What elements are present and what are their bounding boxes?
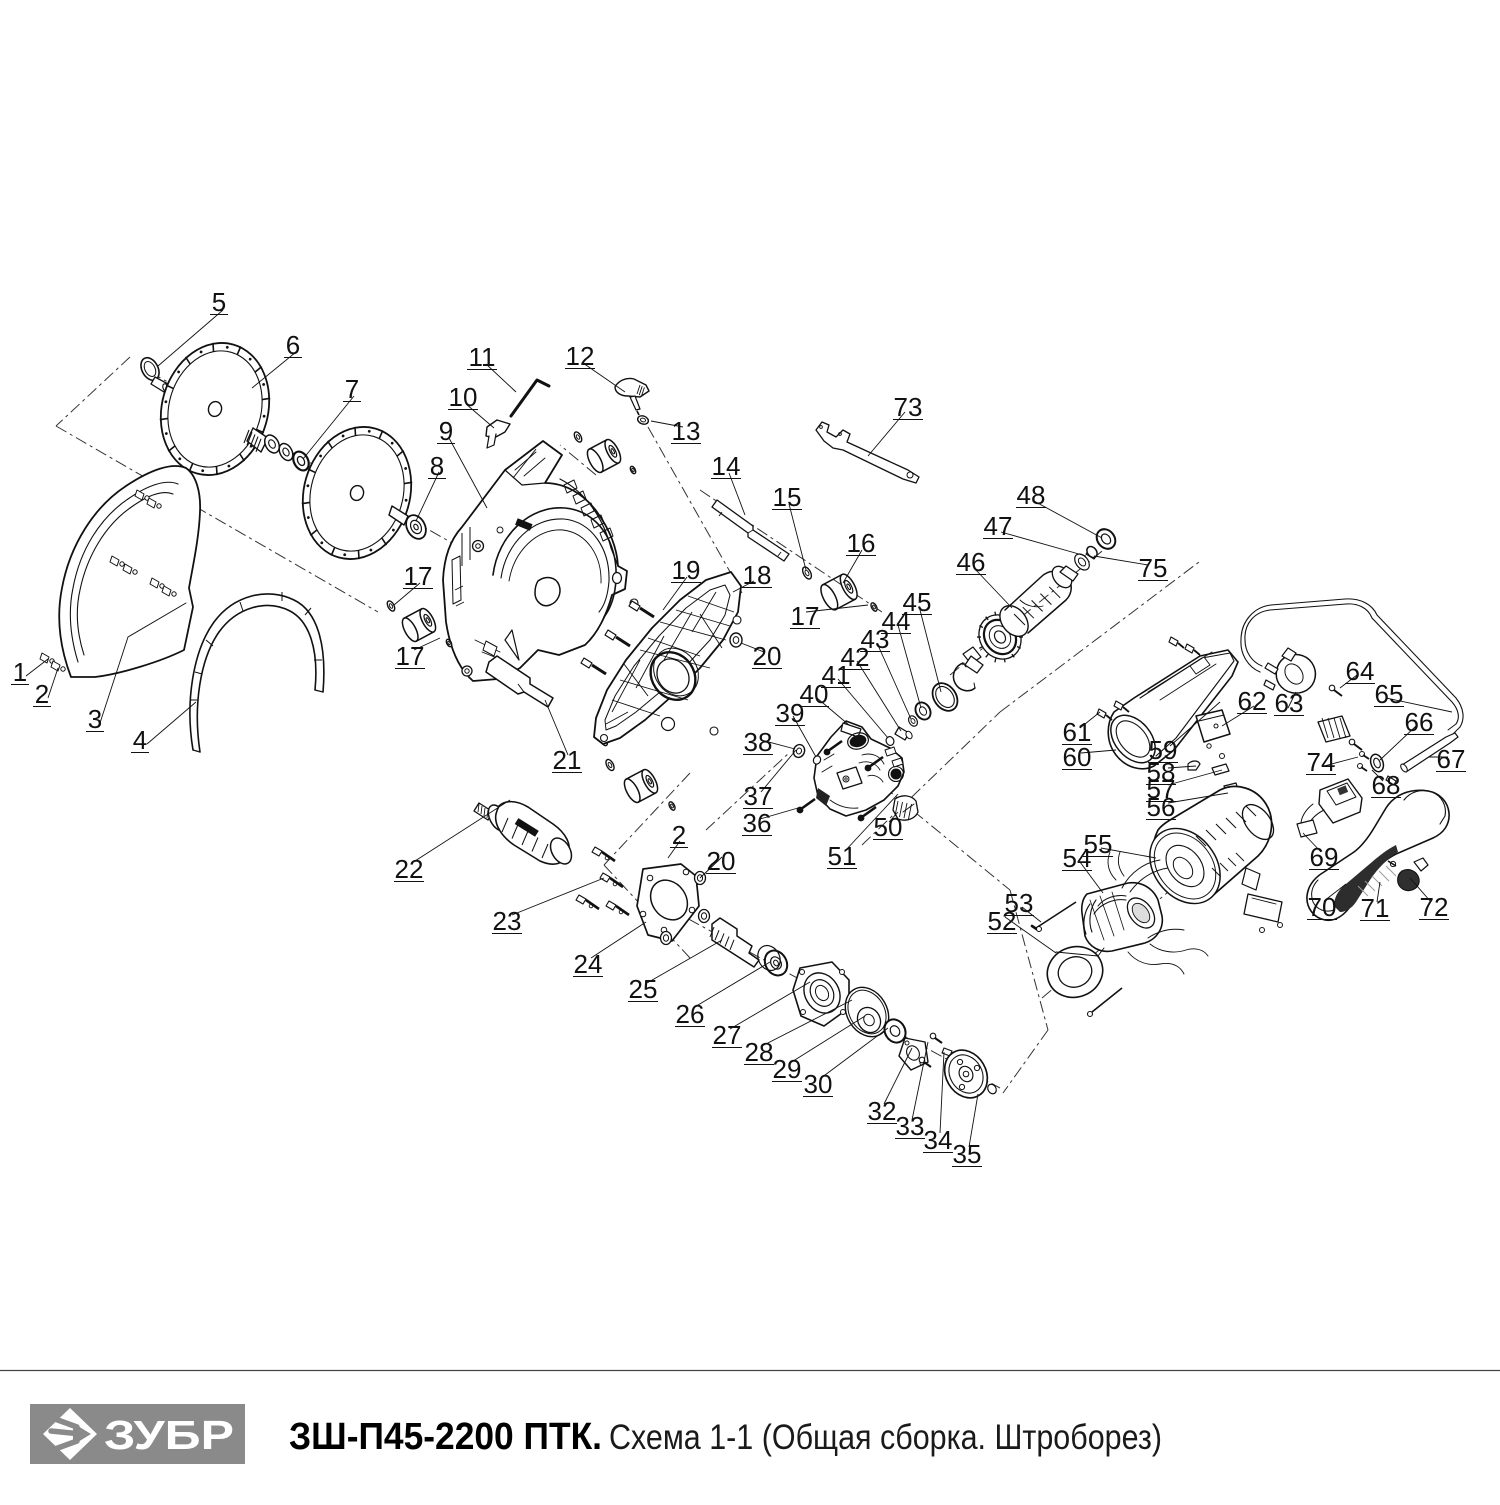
- svg-text:66: 66: [1405, 707, 1434, 737]
- svg-text:17: 17: [791, 601, 820, 631]
- svg-text:25: 25: [629, 974, 658, 1004]
- svg-text:Схема 1-1 (Общая сборка. Штроб: Схема 1-1 (Общая сборка. Штроборез): [609, 1418, 1162, 1457]
- svg-text:28: 28: [745, 1037, 774, 1067]
- svg-text:75: 75: [1139, 553, 1168, 583]
- svg-text:33: 33: [896, 1111, 925, 1141]
- svg-text:6: 6: [286, 330, 300, 360]
- svg-text:37: 37: [744, 781, 773, 811]
- svg-text:15: 15: [773, 482, 802, 512]
- svg-text:38: 38: [744, 727, 773, 757]
- svg-text:59: 59: [1149, 735, 1178, 765]
- svg-text:53: 53: [1005, 888, 1034, 918]
- svg-text:23: 23: [493, 906, 522, 936]
- svg-text:48: 48: [1017, 480, 1046, 510]
- svg-text:24: 24: [574, 949, 603, 979]
- svg-text:61: 61: [1063, 717, 1092, 747]
- svg-text:7: 7: [345, 374, 359, 404]
- svg-text:21: 21: [553, 745, 582, 775]
- svg-text:50: 50: [874, 812, 903, 842]
- svg-text:20: 20: [707, 846, 736, 876]
- svg-text:68: 68: [1372, 770, 1401, 800]
- svg-text:11: 11: [469, 342, 496, 372]
- svg-text:13: 13: [672, 416, 701, 446]
- svg-text:8: 8: [430, 451, 444, 481]
- svg-text:34: 34: [924, 1125, 953, 1155]
- svg-text:36: 36: [743, 808, 772, 838]
- svg-text:ЗУБР: ЗУБР: [104, 1412, 234, 1458]
- svg-text:18: 18: [743, 560, 772, 590]
- svg-text:35: 35: [953, 1139, 982, 1169]
- svg-text:72: 72: [1420, 892, 1449, 922]
- svg-text:17: 17: [396, 641, 425, 671]
- svg-text:27: 27: [713, 1020, 742, 1050]
- svg-text:51: 51: [828, 841, 857, 871]
- svg-text:16: 16: [847, 528, 876, 558]
- svg-text:70: 70: [1308, 892, 1337, 922]
- svg-text:71: 71: [1361, 893, 1390, 923]
- svg-text:3: 3: [88, 704, 102, 734]
- svg-text:65: 65: [1375, 679, 1404, 709]
- svg-text:10: 10: [449, 382, 478, 412]
- svg-text:45: 45: [903, 587, 932, 617]
- svg-text:67: 67: [1437, 744, 1466, 774]
- svg-text:ЗШ-П45-2200 ПТК.: ЗШ-П45-2200 ПТК.: [289, 1416, 602, 1458]
- svg-text:2: 2: [672, 820, 686, 850]
- svg-text:47: 47: [984, 511, 1013, 541]
- svg-text:5: 5: [212, 287, 226, 317]
- svg-text:1: 1: [13, 657, 27, 687]
- svg-text:73: 73: [894, 392, 923, 422]
- svg-text:4: 4: [133, 725, 147, 755]
- svg-text:12: 12: [566, 341, 595, 371]
- svg-text:26: 26: [676, 999, 705, 1029]
- svg-text:69: 69: [1310, 842, 1339, 872]
- svg-text:63: 63: [1275, 688, 1304, 718]
- svg-text:2: 2: [35, 679, 49, 709]
- svg-text:30: 30: [804, 1069, 833, 1099]
- svg-text:9: 9: [439, 416, 453, 446]
- svg-text:64: 64: [1346, 656, 1375, 686]
- svg-text:46: 46: [957, 547, 986, 577]
- svg-text:62: 62: [1238, 686, 1267, 716]
- svg-text:14: 14: [712, 451, 741, 481]
- svg-text:19: 19: [672, 555, 701, 585]
- svg-text:20: 20: [753, 641, 782, 671]
- svg-text:22: 22: [395, 854, 424, 884]
- svg-text:74: 74: [1307, 747, 1336, 777]
- svg-text:17: 17: [404, 561, 433, 591]
- svg-text:55: 55: [1084, 829, 1113, 859]
- svg-text:32: 32: [868, 1096, 897, 1126]
- svg-text:29: 29: [773, 1054, 802, 1084]
